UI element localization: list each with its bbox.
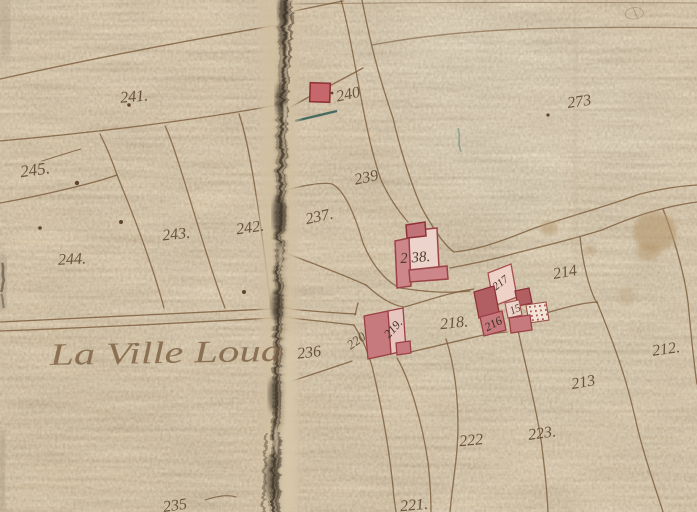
svg-text:236: 236 [296,343,322,363]
svg-text:218.: 218. [439,313,469,333]
svg-text:221.: 221. [399,496,428,512]
svg-text:241.: 241. [119,87,148,106]
svg-text:La Ville Loua: La Ville Loua [48,333,282,372]
svg-text:222: 222 [458,431,483,450]
svg-text:244.: 244. [58,250,87,268]
svg-text:2 38.: 2 38. [400,249,431,267]
svg-text:235: 235 [162,496,188,512]
svg-text:243.: 243. [161,225,191,245]
svg-text:273: 273 [566,92,592,112]
